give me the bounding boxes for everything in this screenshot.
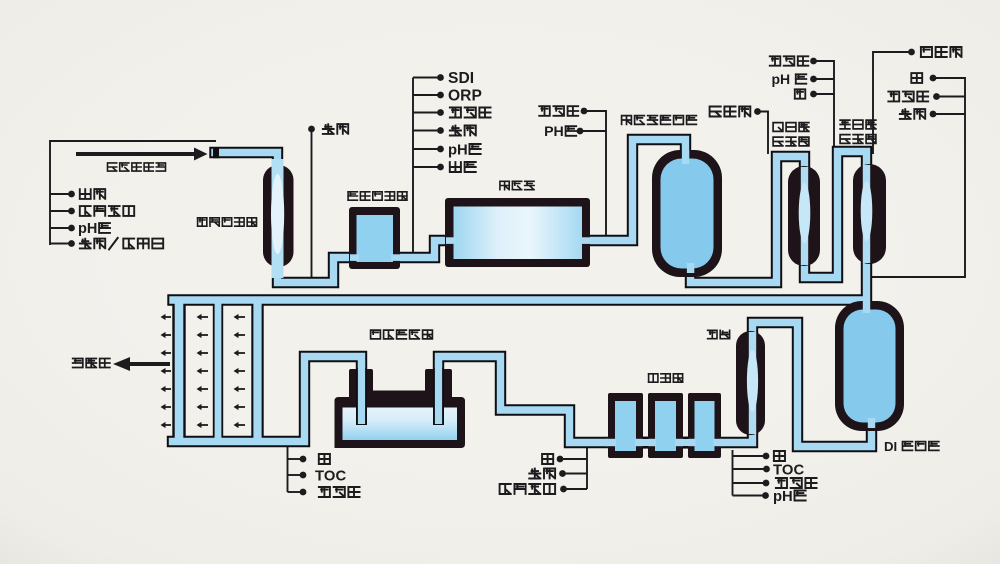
svg-text:SDI: SDI [448, 70, 474, 87]
svg-text:PH: PH [544, 124, 564, 140]
svg-text:pH: pH [773, 489, 793, 505]
svg-text:TOC: TOC [315, 468, 347, 484]
svg-text:pH: pH [78, 221, 97, 237]
svg-text:DI: DI [884, 439, 901, 454]
svg-text:ORP: ORP [448, 88, 482, 105]
svg-text:pH: pH [772, 71, 795, 87]
svg-text:TOC: TOC [773, 462, 805, 478]
svg-text:pH: pH [448, 142, 468, 158]
